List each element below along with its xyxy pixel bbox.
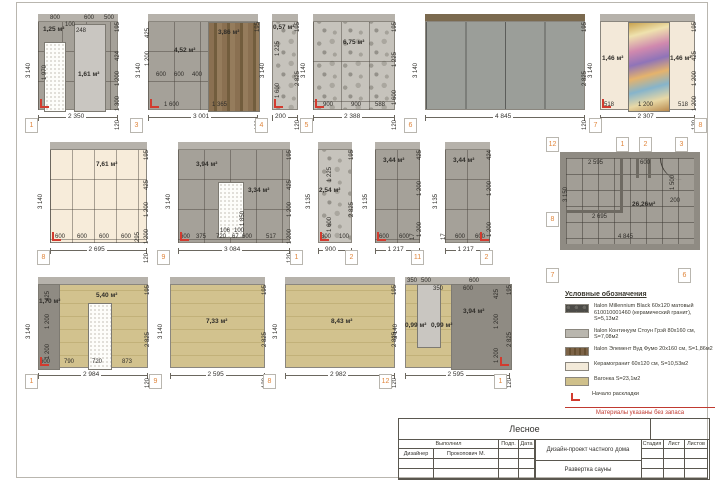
elevation-9: 3,94 м²3,34 м²1 850106100600375720676005… <box>178 142 290 243</box>
legend: Условные обозначения Italon Millennium B… <box>565 291 715 416</box>
wall-marker-4: 4 <box>255 118 268 133</box>
left-height-dim: 3 140 <box>166 193 172 208</box>
dimension-label: 790 <box>64 359 74 365</box>
plan-wall <box>620 158 623 210</box>
left-height-dim: 3 140 <box>38 193 44 208</box>
area-label: 7,61 м² <box>96 162 117 168</box>
area-label: 1,46 м² <box>670 56 691 62</box>
legend-item: Вагонка S=23,1м2 <box>565 376 715 386</box>
dimension-label: 1 200 <box>638 102 653 108</box>
dimension-label: 295 <box>135 232 141 242</box>
elevation-s2: 7,33 м²2 5953 1401952 825120 <box>170 277 265 368</box>
elevation-3: 4,52 м²3,86 м²4251 2006006004001 6001 36… <box>148 14 258 110</box>
dimension-label: 1 225 <box>327 167 333 182</box>
right-dim: 2 825 <box>145 331 151 346</box>
wall-marker-6: 6 <box>678 268 691 283</box>
keram-swatch <box>565 362 589 371</box>
title-center: Дизайн-проект частного дома Развертка са… <box>535 439 642 479</box>
dimension-label: 1 970 <box>42 65 48 80</box>
elevation-11: 3,44 м²600600171 2173 1354251 2001 20012… <box>375 142 420 243</box>
area-label: 3,44 м² <box>453 158 474 164</box>
dimension-label: 400 <box>192 72 202 78</box>
layout-start-mark <box>602 99 611 108</box>
plan-dim-label: 2 595 <box>588 160 603 166</box>
area-label: 1,61 м² <box>78 72 99 78</box>
right-top-dim: 195 <box>507 285 513 295</box>
legend-item: Керамогранит 60х120 см, S=10,53м2 <box>565 361 715 371</box>
layout-start-mark <box>274 99 283 108</box>
wall-marker-3: 3 <box>675 137 688 152</box>
title-object: Лесное <box>399 419 650 439</box>
dimension-label: 600 <box>399 234 409 240</box>
plan-dim-label: 600 <box>640 160 650 166</box>
dimension-label: 600 <box>469 278 479 284</box>
ceiling-band <box>148 14 258 22</box>
right-dim: 1 200 <box>287 228 293 243</box>
wall-marker-7: 7 <box>589 118 602 133</box>
ceiling-band <box>313 14 395 22</box>
legend-item-text: Italon Континуум Стоун Грэй 80х160 см, S… <box>594 328 715 341</box>
elevation-7: 1,46 м²1,46 м²5181 2005182 3073 14019542… <box>600 14 695 110</box>
left-height-dim: 3 140 <box>393 323 399 338</box>
layout-start-mark <box>52 232 61 241</box>
area-label: 3,94 м² <box>463 309 484 315</box>
wall-marker-9: 9 <box>157 250 170 265</box>
dimension-label: 518 <box>678 102 688 108</box>
ceiling-band <box>425 14 585 22</box>
area-label: 3,86 м² <box>218 30 239 36</box>
right-bottom-dim: 120 <box>144 253 150 263</box>
elevation-1: 1,25 м²1,61 м²1 9708001002486005002 3503… <box>38 14 118 110</box>
right-dim: 1 200 <box>144 201 150 216</box>
dimension-label: 600 <box>455 234 465 240</box>
ceiling-band <box>600 14 695 22</box>
layout-start-mark <box>180 232 189 241</box>
left-height-dim: 3 140 <box>26 323 32 338</box>
layout-start-mark <box>320 232 329 241</box>
wall-marker-2: 2 <box>480 250 493 265</box>
right-top-dim: 195 <box>287 150 293 160</box>
dimension-label: 67 <box>232 234 239 240</box>
dimension-label: 600 <box>121 234 131 240</box>
dimension-label: 17 <box>441 233 447 240</box>
right-dim: 1 200 <box>115 71 121 86</box>
legend-item: Italon Millennium Black 60х120 матовый 6… <box>565 303 715 323</box>
dimension-label: 600 <box>156 72 166 78</box>
right-top-dim: 195 <box>115 22 121 32</box>
wall-marker-2: 2 <box>345 250 358 265</box>
legend-item-text: Керамогранит 60х120 см, S=10,53м2 <box>594 361 688 368</box>
project-name: Дизайн-проект частного дома <box>535 439 641 461</box>
dimension-label: 1 200 <box>45 314 51 329</box>
elevation-6: 4 8453 1401952 825120 <box>425 14 585 110</box>
bottom-total-dim: 3 001 <box>191 113 211 120</box>
millennium-swatch <box>565 304 589 313</box>
dimension-label: 720 <box>216 234 226 240</box>
wall-face <box>50 142 147 243</box>
bottom-total-dim: 1 217 <box>456 246 476 253</box>
dimension-label: 600 <box>242 234 252 240</box>
bottom-total-dim: 1 217 <box>386 246 406 253</box>
area-label: 3,34 м² <box>248 188 269 194</box>
right-top-dim: 195 <box>255 22 261 32</box>
element-swatch <box>565 347 589 356</box>
bottom-total-dim: 200 <box>273 113 288 120</box>
right-top-dim: 195 <box>295 22 301 32</box>
right-top-dim: 195 <box>145 285 151 295</box>
elevation-12: 3,44 м²176006001 2173 1354241 2001 20012… <box>445 142 490 243</box>
wall-marker-2: 2 <box>639 137 652 152</box>
plan-wall <box>566 210 623 213</box>
drawing-sheet: 1,25 м²1,61 м²1 9708001002486005002 3503… <box>0 0 720 480</box>
right-dim: 2 825 <box>349 201 355 216</box>
right-bottom-dim: 120 <box>392 378 398 388</box>
legend-item: Italon Элемент Вуд Фумо 20х160 см, S=1,8… <box>565 346 715 356</box>
wall-marker-1: 1 <box>616 137 629 152</box>
right-dim: 1 200 <box>487 181 493 196</box>
legend-item-text: Начало раскладки <box>592 391 639 398</box>
right-dim: 1 200 <box>417 181 423 196</box>
elevation-10: 2,54 м²1 2251 6008001009003 1351952 8251… <box>318 142 352 243</box>
ceiling-band <box>375 142 420 150</box>
dimension-label: 1 200 <box>145 51 151 66</box>
dimension-label: 100 <box>65 22 75 28</box>
title-right-table: Стадия Лист Листов <box>641 439 708 479</box>
bottom-total-dim: 2 595 <box>206 371 226 378</box>
right-dim: 1 225 <box>392 52 398 67</box>
bottom-total-dim: 2 595 <box>446 371 466 378</box>
ceiling-band <box>445 142 490 150</box>
legend-items: Italon Millennium Black 60х120 матовый 6… <box>565 303 715 401</box>
area-label: 0,99 м² <box>405 323 426 329</box>
left-height-dim: 3 140 <box>413 63 419 78</box>
bottom-total-dim: 2 984 <box>81 371 101 378</box>
area-label: 2,54 м² <box>319 188 340 194</box>
col-list: Лист <box>664 439 685 449</box>
dimension-label: 1 600 <box>275 83 281 98</box>
bottom-total-dim: 3 084 <box>222 246 242 253</box>
layout-start-mark <box>40 99 49 108</box>
left-height-dim: 3 135 <box>433 193 439 208</box>
elevation-8: 7,61 м²6006006006002952 6953 1401954251 … <box>50 142 147 243</box>
legend-item: Italon Континуум Стоун Грэй 80х160 см, S… <box>565 328 715 341</box>
right-dim: 2 825 <box>262 331 268 346</box>
wall-marker-1: 1 <box>494 374 507 389</box>
left-height-dim: 3 140 <box>588 63 594 78</box>
area-label: 7,33 м² <box>206 319 227 325</box>
bottom-total-dim: 2 982 <box>328 371 348 378</box>
right-dim: 1 200 <box>692 71 698 86</box>
continuum-swatch <box>565 329 589 338</box>
dimension-label: 1 850 <box>240 211 246 226</box>
layout-start-mark <box>377 232 386 241</box>
legend-item: Начало раскладки <box>565 391 715 401</box>
dimension-label: 588 <box>375 102 385 108</box>
right-bottom-dim: 120 <box>392 120 398 130</box>
left-height-dim: 3 140 <box>26 63 32 78</box>
left-height-dim: 3 140 <box>158 323 164 338</box>
dimension-label: 600 <box>99 234 109 240</box>
plan-wall <box>636 158 639 178</box>
wall-marker-8: 8 <box>694 118 707 133</box>
left-height-dim: 3 140 <box>136 63 142 78</box>
wall-marker-11: 11 <box>411 250 424 265</box>
right-bottom-dim: 120 <box>582 120 588 130</box>
dimension-label: 1 600 <box>164 102 179 108</box>
wall-marker-1: 1 <box>290 250 303 265</box>
dimension-label: 1 600 <box>327 217 333 232</box>
ceiling-band <box>285 277 395 285</box>
layout-start-mark <box>40 357 49 366</box>
dimension-label: 375 <box>196 234 206 240</box>
elevation-s4: 3505006004253506003,94 м²0,99 м²0,99 м²1… <box>405 277 510 368</box>
dimension-label: 720 <box>92 359 102 365</box>
area-label: 5,40 м² <box>96 293 117 299</box>
layout-start-mark <box>315 99 324 108</box>
ceiling-band <box>318 142 352 150</box>
bottom-total-dim: 4 845 <box>493 113 513 120</box>
plan-dim-label: 4 845 <box>618 234 633 240</box>
area-label: 1,46 м² <box>602 56 623 62</box>
elevation-5: 6,75 м²9009005882 3883 1401951 2251 6001… <box>313 14 395 110</box>
dimension-label: 425 <box>145 28 151 38</box>
right-top-dim: 195 <box>582 22 588 32</box>
wall-marker-5: 5 <box>300 118 313 133</box>
wall-marker-12: 12 <box>379 374 392 389</box>
right-top-dim: 425 <box>417 150 423 160</box>
plan-area-label: 26,26м² <box>632 202 655 208</box>
ceiling-band <box>272 14 298 22</box>
right-dim: 1 200 <box>692 96 698 111</box>
lightpanel-panel <box>74 24 106 112</box>
legend-item-text: Italon Элемент Вуд Фумо 20х160 см, S=1,8… <box>594 346 713 353</box>
bottom-total-dim: 2 307 <box>636 113 656 120</box>
col-done: Выполнил <box>399 439 499 449</box>
elevation-s3: 8,43 м²2 9823 1401952 825120 <box>285 277 395 368</box>
col-sign: Подп. <box>499 439 519 449</box>
layout-start-mark <box>500 357 509 366</box>
right-dim: 1 200 <box>144 228 150 243</box>
area-label: 8,43 м² <box>331 319 352 325</box>
title-block: Лесное Выполнил Подп. Дата Дизайнер Прок… <box>398 418 710 480</box>
right-dim: 424 <box>115 51 121 61</box>
wall-marker-7: 7 <box>546 268 559 283</box>
ceiling-band <box>178 142 290 150</box>
area-label: 1,25 м² <box>43 27 64 33</box>
right-top-dim: 195 <box>692 22 698 32</box>
sheet-name: Развертка сауны <box>535 461 641 479</box>
wall-marker-8: 8 <box>37 250 50 265</box>
vagonka-swatch <box>565 377 589 386</box>
right-dim: 1 600 <box>392 90 398 105</box>
right-top-dim: 424 <box>487 150 493 160</box>
dimension-label: 873 <box>122 359 132 365</box>
floor-plan-box: 2 59560026,26м²2 6954 8452003 1501 500 <box>560 152 700 250</box>
dimension-label: 500 <box>421 278 431 284</box>
mural-panel <box>628 22 670 112</box>
left-height-dim: 3 135 <box>306 193 312 208</box>
left-height-dim: 3 140 <box>273 323 279 338</box>
wall-marker-1: 1 <box>25 118 38 133</box>
elevation-s1: 1,70 м²5,40 м²4251 2001 2006007907208732… <box>38 277 148 368</box>
right-top-dim: 195 <box>262 285 268 295</box>
right-top-dim: 195 <box>349 150 355 160</box>
legend-item-text: Italon Millennium Black 60х120 матовый 6… <box>594 303 715 323</box>
right-bottom-dim: 120 <box>115 120 121 130</box>
legend-item-text: Вагонка S=23,1м2 <box>594 376 640 383</box>
dimension-label: 1 200 <box>494 314 500 329</box>
area-label: 3,94 м² <box>196 162 217 168</box>
right-dim: 425 <box>144 179 150 189</box>
wall-marker-3: 3 <box>130 118 143 133</box>
right-top-dim: 195 <box>392 22 398 32</box>
wall-face <box>425 14 585 110</box>
dimension-label: 900 <box>323 102 333 108</box>
plan-dim-label: 200 <box>670 198 680 204</box>
dimension-label: 600 <box>84 15 94 21</box>
area-label: 6,75 м² <box>343 40 364 46</box>
lightpanel-panel <box>417 284 441 348</box>
bottom-total-dim: 2 695 <box>87 246 107 253</box>
right-top-dim: 195 <box>144 150 150 160</box>
dimension-label: 350 <box>433 286 443 292</box>
bottom-total-dim: 2 388 <box>342 113 362 120</box>
dimension-label: 600 <box>77 234 87 240</box>
area-label: 3,44 м² <box>383 158 404 164</box>
wall-marker-8: 8 <box>263 374 276 389</box>
left-height-dim: 3 140 <box>301 63 307 78</box>
bottom-total-dim: 900 <box>323 246 338 253</box>
wall-marker-9: 9 <box>149 374 162 389</box>
right-dim: 2 825 <box>507 331 513 346</box>
left-height-dim: 3 140 <box>260 63 266 78</box>
col-stage: Стадия <box>641 439 664 449</box>
right-dim: 425 <box>287 179 293 189</box>
dimension-label: 1 365 <box>212 102 227 108</box>
ceiling-band <box>170 277 265 285</box>
person-cell: Прокопович М. <box>434 449 499 459</box>
dimension-label: 17 <box>410 233 416 240</box>
right-dim: 1 300 <box>115 96 121 111</box>
col-date: Дата <box>519 439 535 449</box>
ceiling-band <box>50 142 147 150</box>
legend-note: Материалы указаны без запаса <box>565 407 715 416</box>
right-dim: 1 200 <box>287 201 293 216</box>
dimension-label: 900 <box>351 102 361 108</box>
left-height-dim: 3 135 <box>363 193 369 208</box>
layout-start-mark <box>480 232 489 241</box>
wall-marker-8: 8 <box>546 212 559 227</box>
role-cell: Дизайнер <box>399 449 434 459</box>
wall-marker-6: 6 <box>404 118 417 133</box>
area-label: 0,57 м² <box>273 25 294 31</box>
elevation-4: 0,57 м²1 2251 6002003 1401952 825120 <box>272 14 298 110</box>
layout-start-mark <box>150 99 159 108</box>
dimension-label: 600 <box>463 286 473 292</box>
dimension-label: 800 <box>50 15 60 21</box>
col-lists: Листов <box>685 439 708 449</box>
title-left-table: Выполнил Подп. Дата Дизайнер Прокопович … <box>399 439 536 479</box>
title-top-right-cell <box>650 419 709 439</box>
wall-marker-12: 12 <box>546 137 559 152</box>
dimension-label: 248 <box>76 28 86 34</box>
dimension-label: 1 225 <box>275 41 281 56</box>
dimension-label: 100 <box>339 234 349 240</box>
dimension-label: 425 <box>45 291 51 301</box>
plan-dim-label: 1 500 <box>670 175 676 190</box>
dimension-label: 517 <box>266 234 276 240</box>
dimension-label: 350 <box>407 278 417 284</box>
plan-dim-label: 2 695 <box>592 214 607 220</box>
right-dim: 1 200 <box>417 222 423 237</box>
right-dim: 425 <box>692 51 698 61</box>
right-bottom-dim: 120 <box>507 378 513 388</box>
start-swatch <box>565 392 587 401</box>
area-label: 0,99 м² <box>431 323 452 329</box>
legend-title: Условные обозначения <box>565 291 715 298</box>
wall-marker-1: 1 <box>25 374 38 389</box>
bottom-total-dim: 2 350 <box>66 113 86 120</box>
dimension-label: 500 <box>104 15 114 21</box>
right-top-dim: 195 <box>392 285 398 295</box>
dimension-label: 600 <box>174 72 184 78</box>
plan-dim-label: 3 150 <box>563 187 569 202</box>
wall-face <box>313 14 395 110</box>
dimension-label: 425 <box>494 289 500 299</box>
area-label: 4,52 м² <box>174 48 195 54</box>
